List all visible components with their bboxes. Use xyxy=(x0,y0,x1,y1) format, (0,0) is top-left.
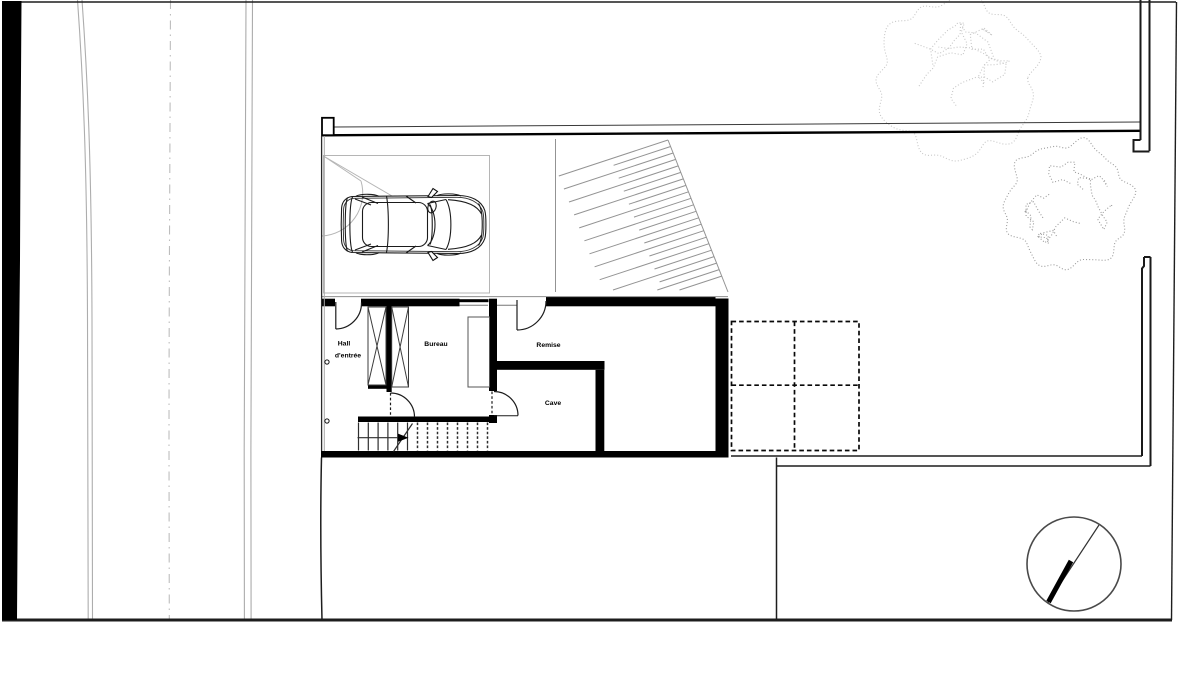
svg-text:Cave: Cave xyxy=(545,400,561,407)
svg-text:Remise: Remise xyxy=(536,342,560,349)
svg-text:Bureau: Bureau xyxy=(424,341,447,348)
svg-text:Hall: Hall xyxy=(338,341,351,348)
svg-text:d'entrée: d'entrée xyxy=(335,353,361,360)
